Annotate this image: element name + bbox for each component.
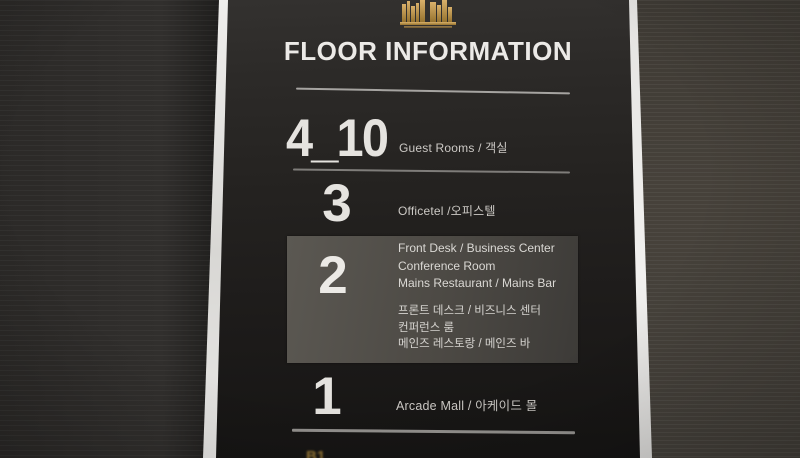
floor-2-korean-lines: 프론트 데스크 / 비즈니스 센터 컨퍼런스 룸 메인즈 레스토랑 / 메인즈 … [398, 303, 541, 353]
floor-2-line-conference-ko: 컨퍼런스 룸 [398, 320, 541, 337]
floor-2-line-front-desk: Front Desk / Business Center [398, 240, 556, 258]
floor-2-line-conference: Conference Room [398, 258, 556, 276]
sign-title: FLOOR INFORMATION [227, 36, 629, 67]
divider-under-floor-4-10 [293, 169, 570, 174]
floor-label-guest-rooms: Guest Rooms / 객실 [399, 139, 508, 156]
floor-number-1: 1 [302, 370, 352, 423]
floor-number-b1-cropped: B1 [306, 449, 325, 458]
hotel-building-logo-icon [400, 0, 457, 29]
sign-content: FLOOR INFORMATION 4_10 Guest Rooms / 객실 … [0, 0, 800, 458]
floor-number-4-10: 4_10 [286, 112, 387, 165]
divider-under-floor-1 [292, 429, 575, 434]
floor-2-english-lines: Front Desk / Business Center Conference … [398, 240, 556, 293]
floor-2-line-restaurant-ko: 메인즈 레스토랑 / 메인즈 바 [398, 336, 541, 353]
floor-sign-photo: FLOOR INFORMATION 4_10 Guest Rooms / 객실 … [0, 0, 800, 458]
floor-label-arcade-mall: Arcade Mall / 아케이드 몰 [396, 395, 537, 414]
floor-2-line-restaurant: Mains Restaurant / Mains Bar [398, 275, 556, 293]
floor-number-2: 2 [308, 249, 358, 302]
floor-2-line-front-desk-ko: 프론트 데스크 / 비즈니스 센터 [398, 303, 541, 320]
divider-under-title [296, 88, 570, 95]
floor-number-3: 3 [312, 177, 362, 230]
floor-label-officetel: Officetel /오피스텔 [398, 202, 496, 219]
